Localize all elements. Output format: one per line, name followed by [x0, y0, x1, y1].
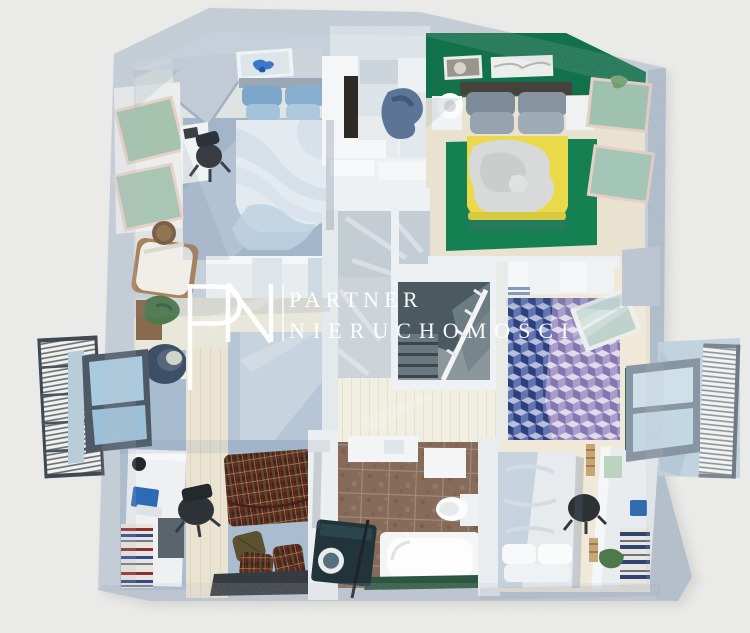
svg-text:PARTNER: PARTNER — [289, 287, 423, 312]
svg-text:NIERUCHOMOŚCI: NIERUCHOMOŚCI — [289, 318, 576, 343]
